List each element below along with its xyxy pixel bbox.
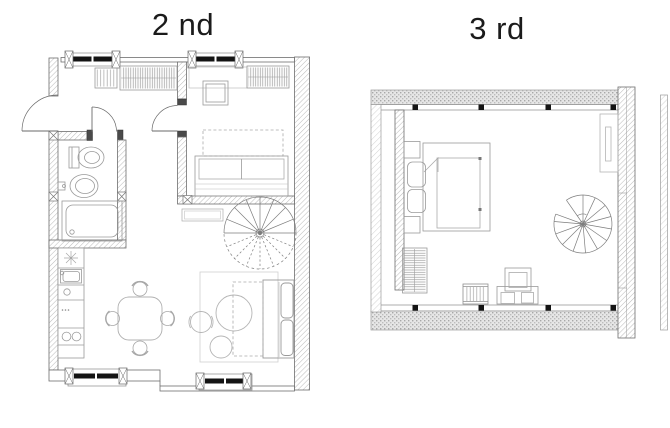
radiator-window [196,373,252,390]
second-floor-plan [22,51,310,391]
socket-icon [118,192,127,201]
bedroom-door [152,106,178,132]
bedroom-sofa-bed [195,130,288,196]
dresser [203,81,228,105]
kitchen-counter [58,248,84,358]
socket-icon [49,131,58,140]
chair-icon [132,282,148,296]
socket-icon [49,192,58,201]
nightstand [404,142,420,159]
tv-stand [497,268,538,304]
nightstand [404,217,420,234]
wall-right-3rd [618,87,635,338]
sofa-living [263,280,294,358]
socket-icon [183,196,192,205]
balcony-band-bottom [371,311,620,330]
wardrobe-3rd [403,248,428,293]
floor-plans-drawing [0,0,670,428]
walls-2nd [49,57,310,391]
sink-icon [58,175,98,198]
dining-table [118,297,162,340]
bathtub-icon [62,201,122,241]
radiator-window [65,368,127,386]
bed-3rd [423,143,490,231]
floor-plan-canvas: 2 nd 3 rd [0,0,670,428]
radiator-window [65,51,120,68]
entrance-door [22,95,58,131]
dining-chairs [106,282,175,356]
shelf [182,209,223,221]
third-floor-plan [371,87,668,338]
chair-icon [106,311,120,326]
light-star-icon [64,251,78,265]
railing-bottom [378,305,618,311]
toilet-icon [69,147,104,168]
bathroom-door [92,107,117,132]
radiator-grille [463,284,488,304]
chair-icon [132,341,148,355]
radiator-window [188,51,243,68]
wardrobe-hall [120,66,177,90]
foldout-outline [233,282,263,356]
outer-wall-strip [661,95,668,330]
wall-right-2nd [295,57,310,390]
chair-icon [161,311,175,326]
balcony-band-top [371,90,620,105]
desk [189,67,247,88]
bedroom-bottom-wall [178,196,295,204]
pouf-circles [189,295,252,358]
spiral-staircase-3rd [554,195,612,253]
counter-dots [62,309,70,311]
tall-cabinet [600,114,618,172]
spiral-staircase-2nd [224,197,296,269]
railing-top [378,105,618,111]
closet-hall [95,68,117,88]
wall-left-outer-3rd [371,105,381,313]
wardrobe-bedroom [247,66,289,88]
